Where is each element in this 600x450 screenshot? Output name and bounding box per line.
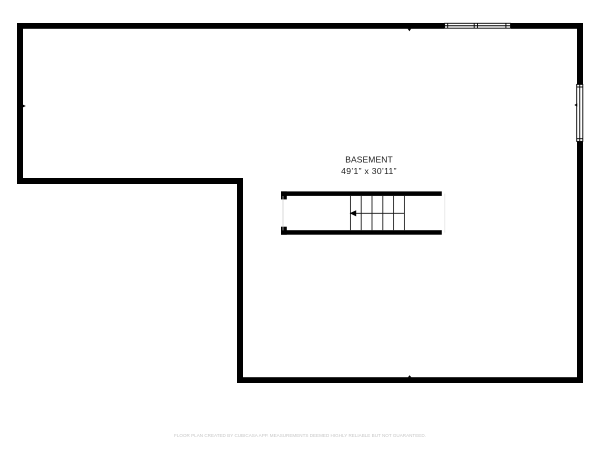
svg-text:49’1” x 30’11”: 49’1” x 30’11” [341, 166, 397, 176]
svg-text:FLOOR PLAN CREATED BY CUBICASA: FLOOR PLAN CREATED BY CUBICASA APP. MEAS… [174, 433, 426, 438]
svg-text:BASEMENT: BASEMENT [345, 155, 393, 165]
